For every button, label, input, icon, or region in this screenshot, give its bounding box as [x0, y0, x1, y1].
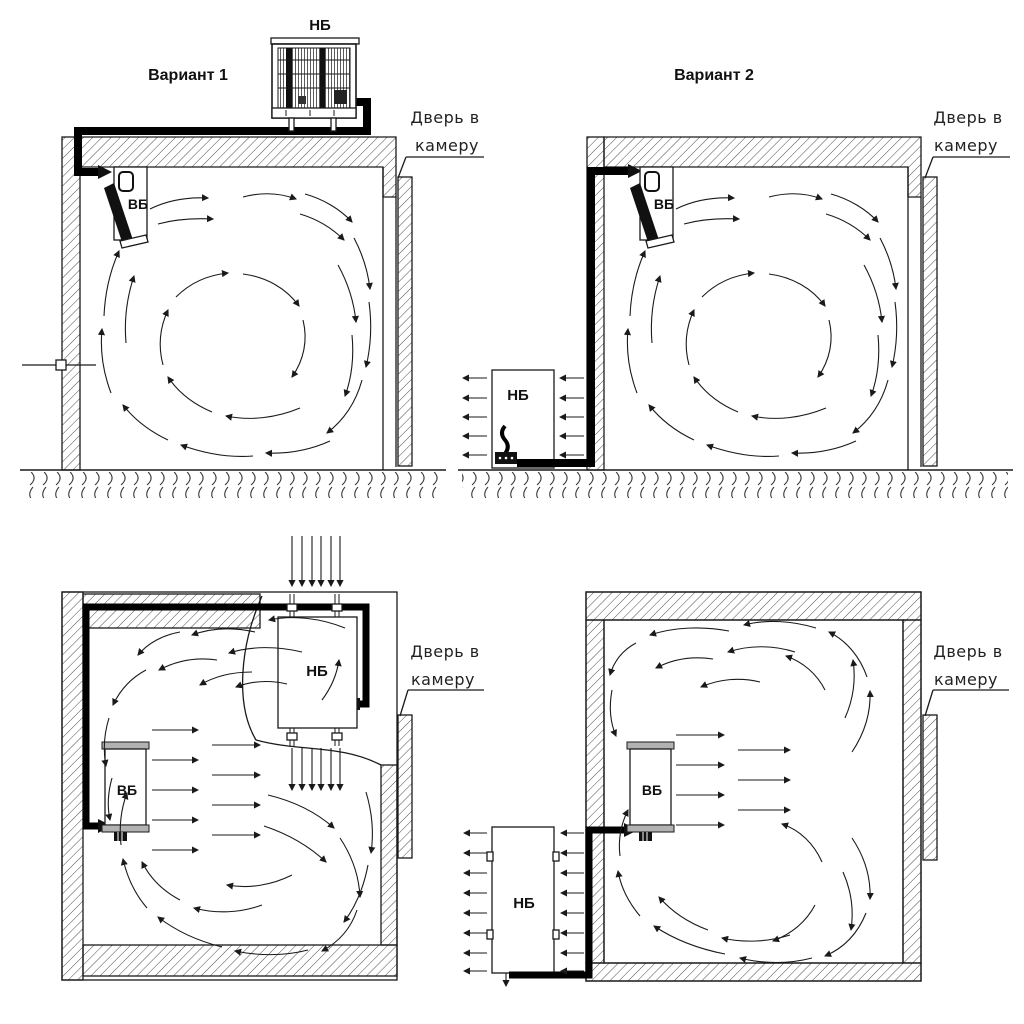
flow-arrow [752, 408, 826, 418]
outdoor-unit-base-band [272, 108, 356, 118]
intake-arrows [560, 378, 584, 455]
flow-arrow [650, 628, 729, 635]
flow-arrow [825, 913, 866, 956]
flow-arrow [618, 871, 640, 916]
flow-arrow [684, 219, 739, 224]
flow-arrow [792, 441, 856, 453]
wall-drain-fitting [56, 360, 66, 370]
hanger-nut [332, 733, 342, 740]
discharge-arrows [292, 748, 340, 790]
flow-arrow [686, 310, 694, 365]
indoor-unit: ВБ [627, 742, 674, 841]
door-panel [923, 177, 937, 466]
chamber-ceiling [83, 594, 260, 628]
flow-arrow [243, 194, 296, 199]
flow-arrow [366, 792, 372, 853]
indoor-unit-label: ВБ [117, 782, 137, 798]
flow-arrow [176, 273, 228, 297]
outdoor-unit-label: НБ [309, 17, 331, 34]
flow-arrow [292, 320, 305, 377]
outside-air-intake-arrows [292, 536, 340, 586]
mount-tab [553, 930, 559, 939]
compressor-silhouette [334, 90, 347, 104]
flow-arrow [366, 302, 371, 367]
flow-arrow [843, 872, 852, 930]
flow-arrow [659, 897, 708, 930]
flow-arrow [159, 659, 217, 670]
flow-arrow [744, 621, 816, 628]
flow-arrow [158, 917, 222, 947]
supply-air-arrows [676, 735, 790, 825]
chamber-left-wall [62, 592, 83, 980]
flow-arrow [845, 660, 854, 718]
indoor-unit-label: ВБ [654, 196, 674, 212]
door-label-line1: Дверь в [933, 108, 1002, 127]
outdoor-unit: НБ [492, 370, 554, 468]
panel-variant1: Вариант 1 НБ [20, 17, 484, 498]
mount-tab [487, 930, 493, 939]
flow-arrow [864, 265, 882, 322]
flow-arrow [168, 377, 212, 412]
chamber-right-wall [903, 620, 921, 963]
door-label-line2: камеру [934, 670, 998, 689]
flow-arrow [227, 875, 292, 887]
flow-arrow [181, 445, 253, 456]
flow-arrow [651, 276, 660, 343]
chamber-ceiling [586, 592, 921, 620]
chamber-floor-wall [586, 963, 921, 981]
indoor-unit-top-cap [102, 742, 149, 749]
indoor-unit-bottom-cap [627, 825, 674, 832]
refrigeration-installation-diagram: Вариант 1 НБ [0, 0, 1024, 1024]
chamber-right-wall [381, 765, 397, 945]
flow-arrow [226, 408, 300, 418]
flow-arrow [769, 194, 822, 199]
flow-arrow [782, 824, 822, 862]
hanger-nut [287, 733, 297, 740]
door-label-line1: Дверь в [410, 108, 479, 127]
chamber-left-wall [62, 137, 80, 470]
flow-arrow [656, 658, 713, 668]
indoor-unit-top-cap [627, 742, 674, 749]
panel-variant3: НБ ВБ Дверь в камеру [62, 536, 484, 980]
flow-arrow [340, 838, 360, 897]
flow-arrow [125, 276, 134, 343]
flow-arrow [676, 198, 734, 209]
flow-arrow [826, 214, 870, 240]
outdoor-unit-label: НБ [306, 663, 328, 680]
outdoor-unit-label: НБ [513, 895, 535, 912]
flow-arrow [786, 656, 825, 690]
flow-arrow [627, 329, 637, 393]
flow-arrow [880, 238, 896, 289]
flow-arrow [113, 670, 146, 705]
flow-arrow [892, 302, 897, 367]
ground-hatch [462, 472, 1008, 498]
flow-arrow [200, 672, 252, 685]
outdoor-unit-leg [289, 118, 294, 131]
grille-dark-band [320, 48, 325, 108]
flow-arrow [101, 329, 111, 393]
door-label-line1: Дверь в [410, 642, 479, 661]
supply-air-arrows [152, 730, 260, 850]
flow-arrow [702, 273, 754, 297]
indoor-unit: ВБ [630, 167, 674, 248]
door-leader-line [925, 157, 933, 178]
door-panel [398, 715, 412, 858]
flow-arrow [649, 405, 694, 440]
panel2-title: Вариант 2 [674, 67, 754, 84]
mount-tab [487, 852, 493, 861]
flow-arrow [123, 859, 147, 908]
flow-arrow [852, 691, 870, 752]
flow-arrow [610, 643, 636, 675]
panel-variant4: НБ ВБ Дверь в камеру [464, 592, 1009, 986]
flow-arrow [268, 795, 334, 828]
mount-tab [553, 852, 559, 861]
door-leader-line [398, 157, 406, 178]
flow-arrow [707, 445, 779, 456]
flow-arrow [630, 251, 645, 316]
door-leader-line [925, 690, 933, 716]
flow-arrow [192, 629, 255, 635]
hanger-nut [332, 604, 342, 611]
flow-arrow [104, 251, 119, 316]
grille-dark-band [286, 48, 292, 108]
indoor-unit-label: ВБ [642, 782, 662, 798]
exhaust-arrows [463, 378, 487, 455]
flow-arrow [818, 320, 831, 377]
flow-arrow [138, 632, 180, 655]
panel1-title: Вариант 1 [148, 67, 228, 84]
door-callout: Дверь в камеру [925, 642, 1009, 716]
panel-variant2: Вариант 2 НБ ВБ [458, 67, 1013, 498]
bolt-dot [511, 457, 514, 460]
flow-arrow [654, 926, 725, 954]
flow-arrow [853, 380, 888, 433]
flow-arrow [728, 647, 795, 652]
flow-arrow [852, 838, 870, 899]
door-label-line2: камеру [415, 136, 479, 155]
flow-arrow [610, 690, 616, 736]
door-panel [923, 715, 937, 860]
outdoor-unit-label: НБ [507, 387, 529, 404]
indoor-unit: ВБ [104, 167, 148, 248]
indoor-unit-foot [639, 832, 652, 841]
flow-arrow [150, 198, 208, 209]
flow-arrow [701, 679, 760, 687]
flow-arrow [829, 632, 867, 677]
flow-arrow [694, 377, 738, 412]
outdoor-unit: НБ [271, 17, 359, 131]
flow-arrow [769, 274, 825, 306]
outdoor-unit-top-cap [271, 38, 359, 44]
bolt-dot [505, 457, 508, 460]
door-label-line2: камеру [411, 670, 475, 689]
hanger-nut [287, 604, 297, 611]
flow-arrow [123, 405, 168, 440]
intake-arrows [561, 833, 584, 971]
outdoor-unit: НБ [487, 827, 559, 973]
indoor-unit-label: ВБ [128, 196, 148, 212]
outdoor-unit-leg [331, 118, 336, 131]
flow-arrow [266, 441, 330, 453]
flow-arrow [194, 905, 262, 912]
flow-arrow [354, 238, 370, 289]
fan-motor [645, 172, 659, 191]
door-label-line2: камеру [934, 136, 998, 155]
door-leader-line [400, 690, 408, 716]
flow-arrow [160, 310, 168, 365]
bolt-dot [499, 457, 502, 460]
flow-arrow [773, 905, 815, 941]
flow-arrow [338, 265, 356, 322]
flow-arrow [243, 274, 299, 306]
flow-arrow [158, 219, 213, 224]
flow-arrow [871, 335, 879, 396]
flow-arrow [142, 862, 180, 900]
fan-motor [119, 172, 133, 191]
flow-arrow [345, 335, 353, 396]
door-panel [398, 177, 412, 466]
chamber-floor-wall [83, 945, 397, 976]
ground-hatch [24, 472, 440, 498]
outdoor-unit: НБ [278, 594, 357, 746]
indoor-unit-bottom-cap [102, 825, 149, 832]
flow-arrow [327, 380, 362, 433]
diagram-canvas: Вариант 1 НБ [0, 0, 1024, 1024]
flow-arrow [740, 958, 812, 963]
flow-arrow [300, 214, 344, 240]
door-callout: Дверь в камеру [925, 108, 1010, 178]
component-silhouette [298, 96, 306, 104]
exhaust-arrows [464, 833, 487, 971]
door-callout: Дверь в камеру [398, 108, 484, 178]
door-label-line1: Дверь в [933, 642, 1002, 661]
door-callout: Дверь в камеру [400, 642, 484, 716]
flow-arrow [264, 826, 326, 862]
